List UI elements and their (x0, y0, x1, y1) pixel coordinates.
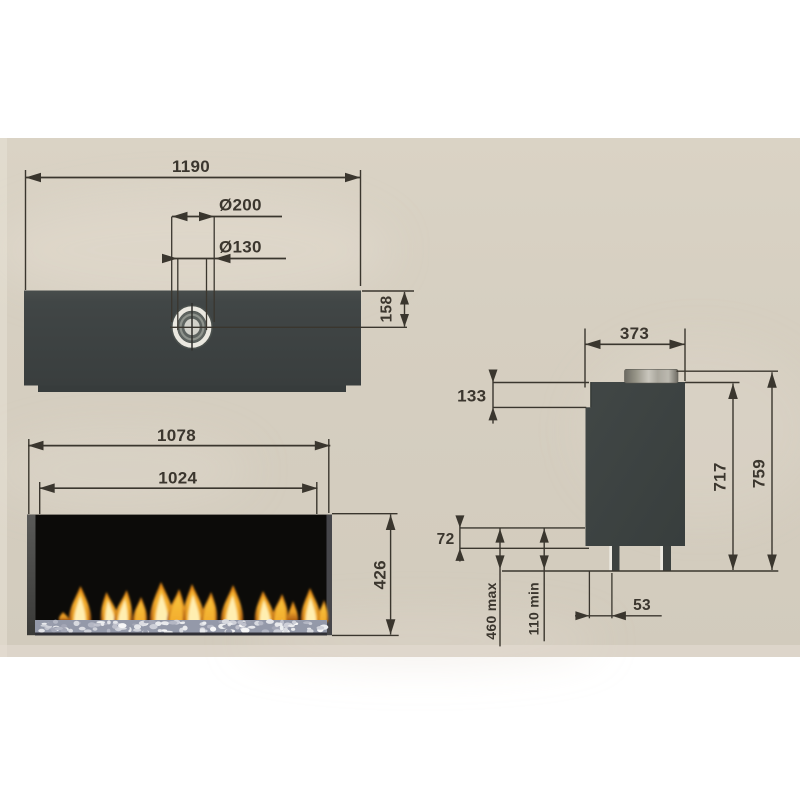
svg-text:1078: 1078 (157, 426, 196, 445)
svg-text:Ø130: Ø130 (219, 238, 262, 257)
svg-text:Ø200: Ø200 (219, 196, 262, 215)
svg-text:110 min: 110 min (526, 582, 542, 635)
svg-text:1024: 1024 (158, 469, 197, 488)
svg-text:426: 426 (371, 560, 390, 589)
svg-text:759: 759 (750, 459, 769, 488)
svg-text:53: 53 (633, 597, 651, 614)
svg-text:373: 373 (620, 324, 649, 343)
svg-text:460 max: 460 max (483, 582, 499, 639)
svg-text:717: 717 (711, 462, 730, 491)
svg-text:158: 158 (379, 296, 396, 323)
svg-text:72: 72 (437, 531, 455, 548)
svg-text:1190: 1190 (172, 157, 210, 176)
svg-text:133: 133 (457, 387, 486, 406)
